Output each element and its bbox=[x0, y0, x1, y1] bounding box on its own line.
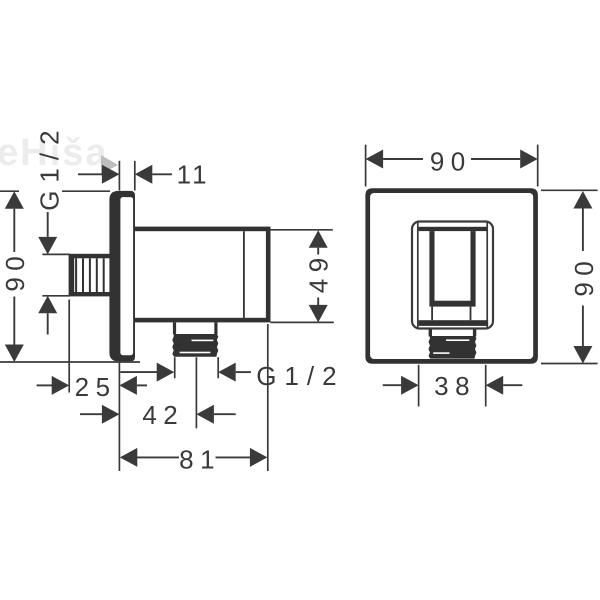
svg-text:90: 90 bbox=[430, 147, 472, 177]
svg-text:G1/2: G1/2 bbox=[34, 122, 64, 210]
svg-text:42: 42 bbox=[142, 400, 184, 430]
svg-text:G1/2: G1/2 bbox=[256, 361, 344, 391]
svg-text:90: 90 bbox=[0, 250, 30, 292]
svg-text:38: 38 bbox=[434, 371, 476, 401]
svg-text:81: 81 bbox=[179, 444, 221, 474]
svg-text:11: 11 bbox=[177, 160, 210, 190]
svg-text:25: 25 bbox=[75, 372, 117, 402]
svg-text:90: 90 bbox=[569, 255, 599, 297]
svg-text:49: 49 bbox=[303, 251, 333, 293]
